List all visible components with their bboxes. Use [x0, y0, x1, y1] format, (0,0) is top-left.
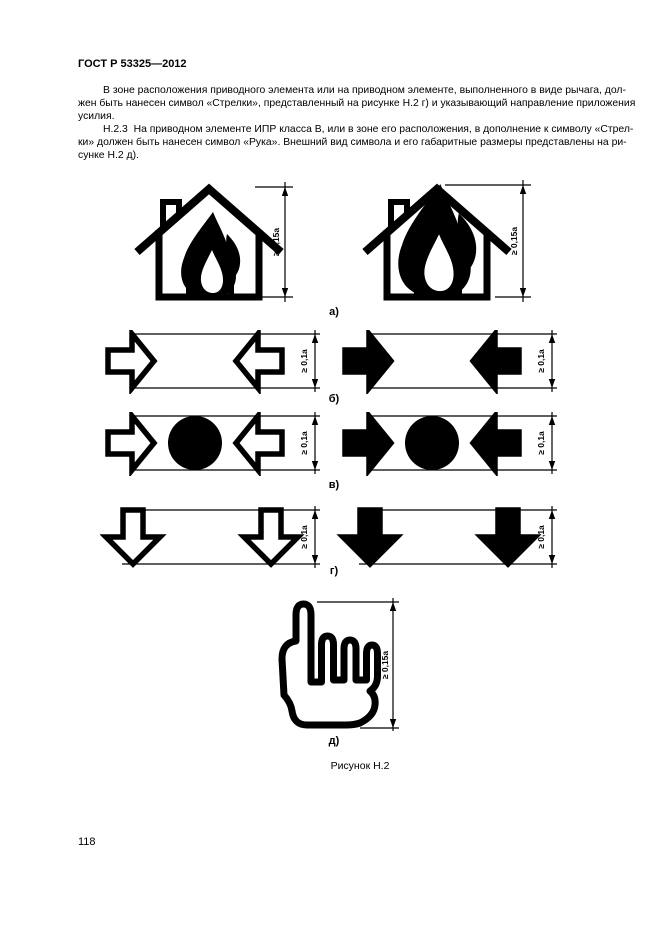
down-arrows-filled: ≥ 0,1a [343, 506, 557, 568]
dimension-label: ≥ 0,1a [299, 349, 309, 373]
circle-symbol [168, 416, 222, 470]
body-line: сунке Н.2 д). [78, 149, 644, 162]
dimension-label: ≥ 0,1a [536, 525, 546, 549]
figure-caption: Рисунок Н.2 [150, 760, 570, 772]
dimension-label: ≥ 0,1a [536, 349, 546, 373]
house-fire-symbol-left [137, 189, 281, 298]
pointing-hand-icon [282, 604, 378, 725]
figure-b-opposing-arrows: ≥ 0,1a ≥ 0,1a [100, 330, 570, 394]
dimension-label: ≥ 0,15a [380, 651, 390, 680]
figure-g-down-arrows: ≥ 0,1a ≥ 0,1a [100, 506, 570, 570]
figure-label-d: д) [234, 735, 434, 747]
figure-a-house-fire-symbols: ≥ 0,15a ≥ 0,15a [115, 172, 545, 307]
dimension-label: ≥ 0,15a [271, 228, 281, 257]
body-line: В зоне расположения приводного элемента … [78, 84, 644, 97]
dimension-label: ≥ 0,1a [299, 431, 309, 455]
figure-d-pointing-hand: ≥ 0,15a [245, 597, 415, 732]
document-page: ГОСТ Р 53325—2012 В зоне расположения пр… [0, 0, 661, 935]
dimension-label: ≥ 0,15a [509, 227, 519, 256]
down-arrows-outline: ≥ 0,1a [106, 506, 320, 568]
arrows-circle-outline: ≥ 0,1a [108, 412, 320, 474]
circle-symbol [405, 416, 459, 470]
house-fire-symbol-right-large-flame [365, 184, 509, 298]
body-line: усилия. [78, 110, 644, 123]
body-line: жен быть нанесен символ «Стрелки», предс… [78, 97, 644, 110]
figure-v-arrows-with-circle: ≥ 0,1a ≥ 0,1a [100, 412, 570, 476]
page-number: 118 [78, 836, 96, 848]
dimension-label: ≥ 0,1a [299, 525, 309, 549]
figure-label-a: а) [234, 306, 434, 318]
figure-label-v: в) [234, 479, 434, 491]
dimension-label: ≥ 0,1a [536, 431, 546, 455]
body-text: В зоне расположения приводного элемента … [78, 84, 644, 163]
figure-label-g: г) [234, 565, 434, 577]
opposing-arrows-outline: ≥ 0,1a [108, 330, 320, 392]
opposing-arrows-filled: ≥ 0,1a [345, 330, 557, 392]
body-line: ки» должен быть нанесен символ «Рука». В… [78, 136, 644, 149]
page-header: ГОСТ Р 53325—2012 [78, 58, 187, 70]
body-line: Н.2.3 На приводном элементе ИПР класса В… [78, 123, 644, 136]
arrows-circle-filled: ≥ 0,1a [345, 412, 557, 474]
figure-label-b: б) [234, 393, 434, 405]
